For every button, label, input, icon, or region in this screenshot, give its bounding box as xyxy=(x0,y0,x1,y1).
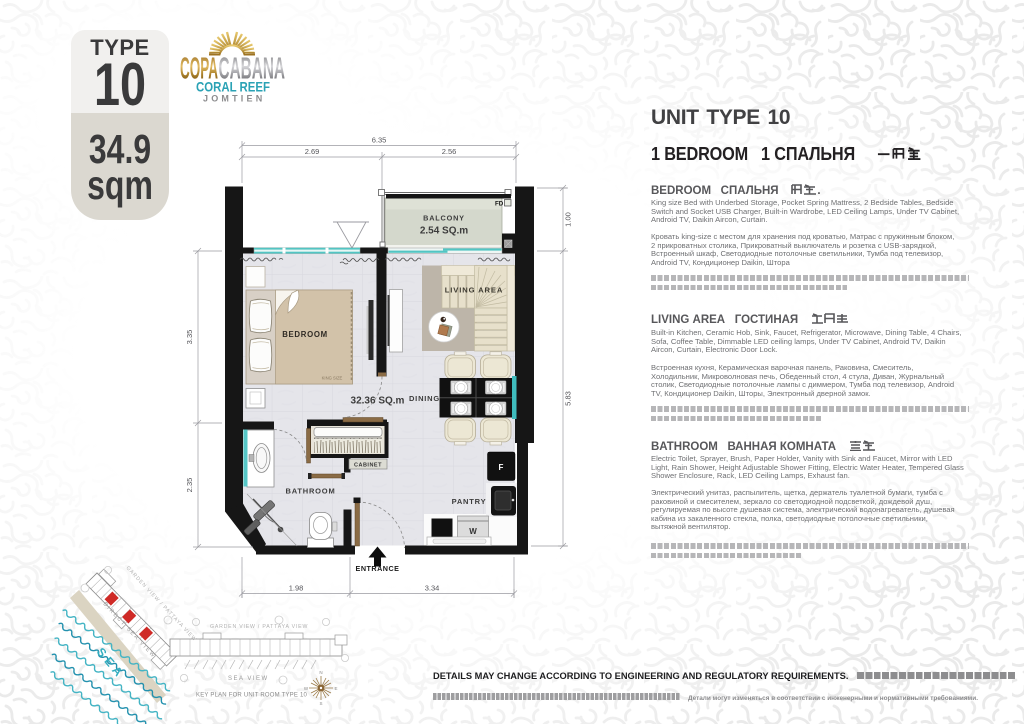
svg-text:SEA VIEW: SEA VIEW xyxy=(228,676,269,682)
svg-text:CABINET: CABINET xyxy=(354,463,382,469)
svg-text:GARDEN VIEW / PATTAYA VIEW: GARDEN VIEW / PATTAYA VIEW xyxy=(210,624,308,630)
svg-text:PANTRY: PANTRY xyxy=(452,497,487,506)
svg-text:F: F xyxy=(499,463,504,472)
svg-text:3.34: 3.34 xyxy=(425,584,440,593)
svg-text:1.98: 1.98 xyxy=(289,584,304,593)
svg-text:KING SIZE: KING SIZE xyxy=(322,376,343,381)
svg-text:BATHROOM: BATHROOM xyxy=(285,487,335,496)
svg-text:N: N xyxy=(319,670,322,675)
svg-text:KEY PLAN FOR UNIT ROOM TYPE 10: KEY PLAN FOR UNIT ROOM TYPE 10 xyxy=(196,693,307,699)
svg-text:2.69: 2.69 xyxy=(305,147,320,156)
svg-text:FD: FD xyxy=(495,201,504,208)
svg-text:DINING: DINING xyxy=(409,394,440,403)
svg-text:3.35: 3.35 xyxy=(185,330,194,345)
svg-text:LIVING AREA: LIVING AREA xyxy=(445,286,504,295)
svg-text:2.56: 2.56 xyxy=(442,147,457,156)
svg-text:2.35: 2.35 xyxy=(185,478,194,493)
svg-text:E: E xyxy=(334,686,337,691)
svg-text:W: W xyxy=(469,527,477,536)
svg-text:W: W xyxy=(304,686,309,691)
svg-text:32.36 SQ.m: 32.36 SQ.m xyxy=(351,396,405,407)
svg-text:2.54 SQ.m: 2.54 SQ.m xyxy=(420,226,468,237)
svg-text:BEDROOM: BEDROOM xyxy=(282,330,328,339)
svg-text:S: S xyxy=(319,701,322,706)
svg-text:ENTRANCE: ENTRANCE xyxy=(356,564,400,573)
svg-text:6.35: 6.35 xyxy=(372,136,387,145)
svg-text:BALCONY: BALCONY xyxy=(423,214,465,223)
svg-text:1.00: 1.00 xyxy=(564,212,573,227)
svg-text:5.83: 5.83 xyxy=(564,391,573,406)
